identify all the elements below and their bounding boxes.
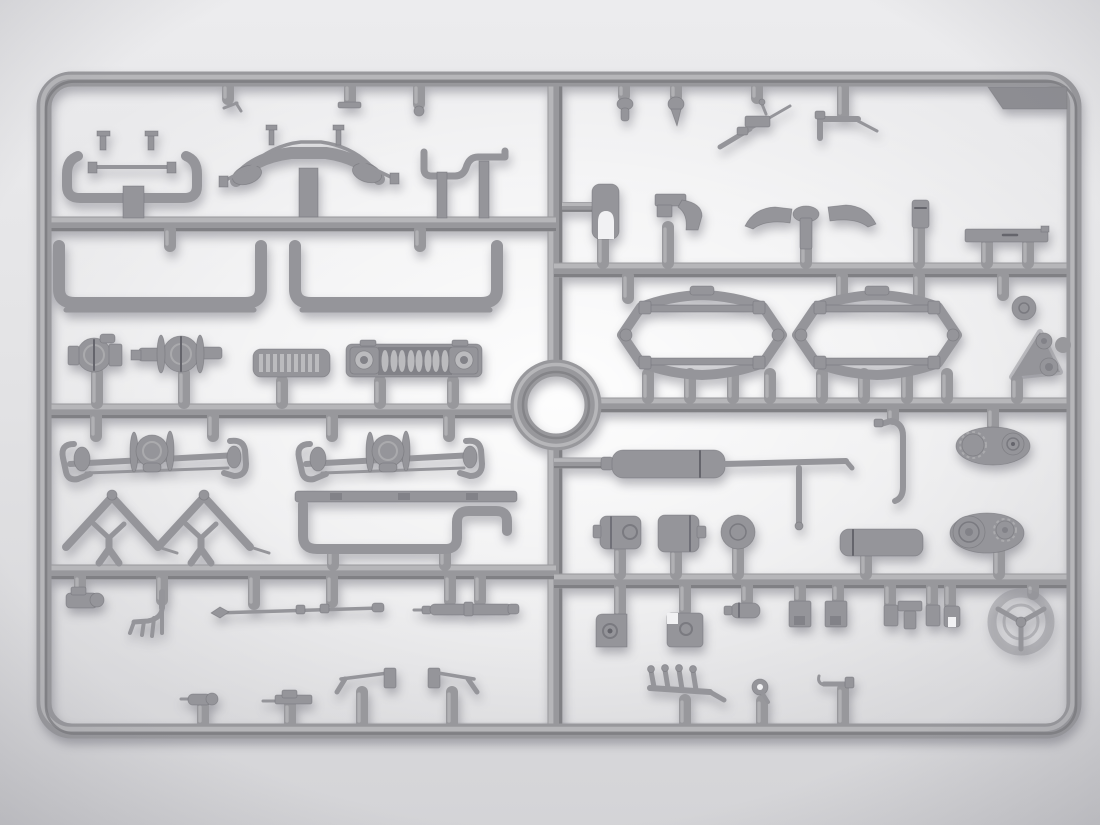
gate-stub bbox=[744, 586, 747, 601]
gate-stub bbox=[377, 381, 380, 403]
gate-stub bbox=[904, 374, 907, 398]
gate-stub bbox=[797, 586, 800, 600]
gate-stub bbox=[447, 577, 450, 601]
gate-stub bbox=[1000, 276, 1003, 295]
gate-stub bbox=[600, 236, 603, 263]
part-air-tank-b bbox=[658, 515, 706, 552]
part-cab-door bbox=[592, 184, 619, 239]
gate-stub bbox=[225, 86, 228, 99]
gate-stub bbox=[754, 86, 757, 98]
gate-stub bbox=[803, 248, 806, 263]
gate-stub bbox=[682, 700, 685, 723]
gate-stub bbox=[682, 586, 685, 611]
part-mount-bracket-b bbox=[667, 613, 703, 647]
gate-stub bbox=[916, 227, 919, 263]
gate-stub bbox=[887, 586, 890, 604]
gate-stub bbox=[890, 410, 893, 419]
runner-left-row2 bbox=[43, 407, 513, 417]
gate-stub bbox=[329, 416, 332, 436]
gate-stub bbox=[984, 242, 987, 263]
part-frame-gate-nub bbox=[1055, 337, 1071, 353]
gate-stub bbox=[181, 373, 184, 403]
part-heater-box bbox=[840, 529, 923, 556]
part-drum-disc bbox=[1012, 296, 1036, 320]
part-grille-panel bbox=[346, 340, 482, 377]
gate-stub bbox=[767, 374, 770, 398]
gate-stub bbox=[840, 86, 843, 115]
gate-stub bbox=[477, 577, 480, 601]
part-transfer-case-b bbox=[950, 513, 1024, 553]
gate-stub bbox=[730, 374, 733, 398]
stub-cab-door-link bbox=[562, 204, 593, 210]
runner-right-row2 bbox=[599, 401, 1075, 411]
gate-stub bbox=[617, 586, 620, 614]
gate-stub bbox=[947, 586, 950, 605]
gate-stub bbox=[840, 689, 843, 723]
gate-stub bbox=[446, 416, 449, 436]
gate-stub bbox=[916, 276, 919, 296]
gate-stub bbox=[279, 381, 282, 403]
gate-stub bbox=[287, 705, 290, 723]
sprue-photo-svg bbox=[0, 0, 1100, 825]
gate-stub bbox=[625, 276, 628, 298]
gate-stub bbox=[210, 416, 213, 436]
gate-stub bbox=[835, 586, 838, 600]
part-small-block bbox=[912, 200, 929, 228]
gate-stub bbox=[819, 374, 822, 398]
gate-stub bbox=[863, 554, 866, 574]
gate-stub bbox=[251, 577, 254, 604]
gate-stub bbox=[617, 550, 620, 574]
gate-stub bbox=[167, 230, 170, 246]
part-air-tank-a bbox=[593, 516, 641, 549]
gate-stub bbox=[417, 230, 420, 246]
part-small-bar bbox=[338, 102, 361, 108]
gate-stub bbox=[665, 227, 668, 263]
gate-stub bbox=[759, 701, 762, 723]
gate-stub bbox=[93, 416, 96, 436]
runner-left-row1 bbox=[43, 220, 556, 230]
part-round-pin bbox=[414, 106, 424, 116]
gate-stub bbox=[94, 372, 97, 403]
gate-stub bbox=[347, 86, 350, 101]
gate-stub bbox=[200, 705, 203, 723]
part-transfer-case-a bbox=[956, 427, 1030, 465]
gate-stub bbox=[645, 374, 648, 398]
gate-stub bbox=[329, 577, 332, 602]
model-kit-sprue-photo: Product photograph of a light-gray injec… bbox=[0, 0, 1100, 825]
gate-stub bbox=[990, 410, 993, 427]
gate-stub bbox=[416, 86, 419, 104]
gate-stub bbox=[359, 692, 362, 723]
part-cube-mount-a bbox=[789, 601, 811, 627]
part-cube-mount-b bbox=[825, 601, 847, 627]
gate-stub bbox=[673, 86, 676, 97]
gate-stub bbox=[1025, 242, 1028, 263]
gate-stub bbox=[1014, 380, 1017, 398]
gate-stub bbox=[449, 692, 452, 723]
part-idler-disc bbox=[721, 515, 755, 549]
part-mount-bracket-a bbox=[596, 614, 627, 647]
gate-stub bbox=[621, 86, 624, 96]
part-louver-plate bbox=[253, 349, 330, 377]
gate-stub bbox=[996, 551, 999, 574]
gate-stub bbox=[944, 374, 947, 398]
gate-stub bbox=[673, 552, 676, 574]
gate-stub bbox=[929, 586, 932, 604]
gate-stub bbox=[450, 381, 453, 403]
gate-stub bbox=[735, 548, 738, 574]
